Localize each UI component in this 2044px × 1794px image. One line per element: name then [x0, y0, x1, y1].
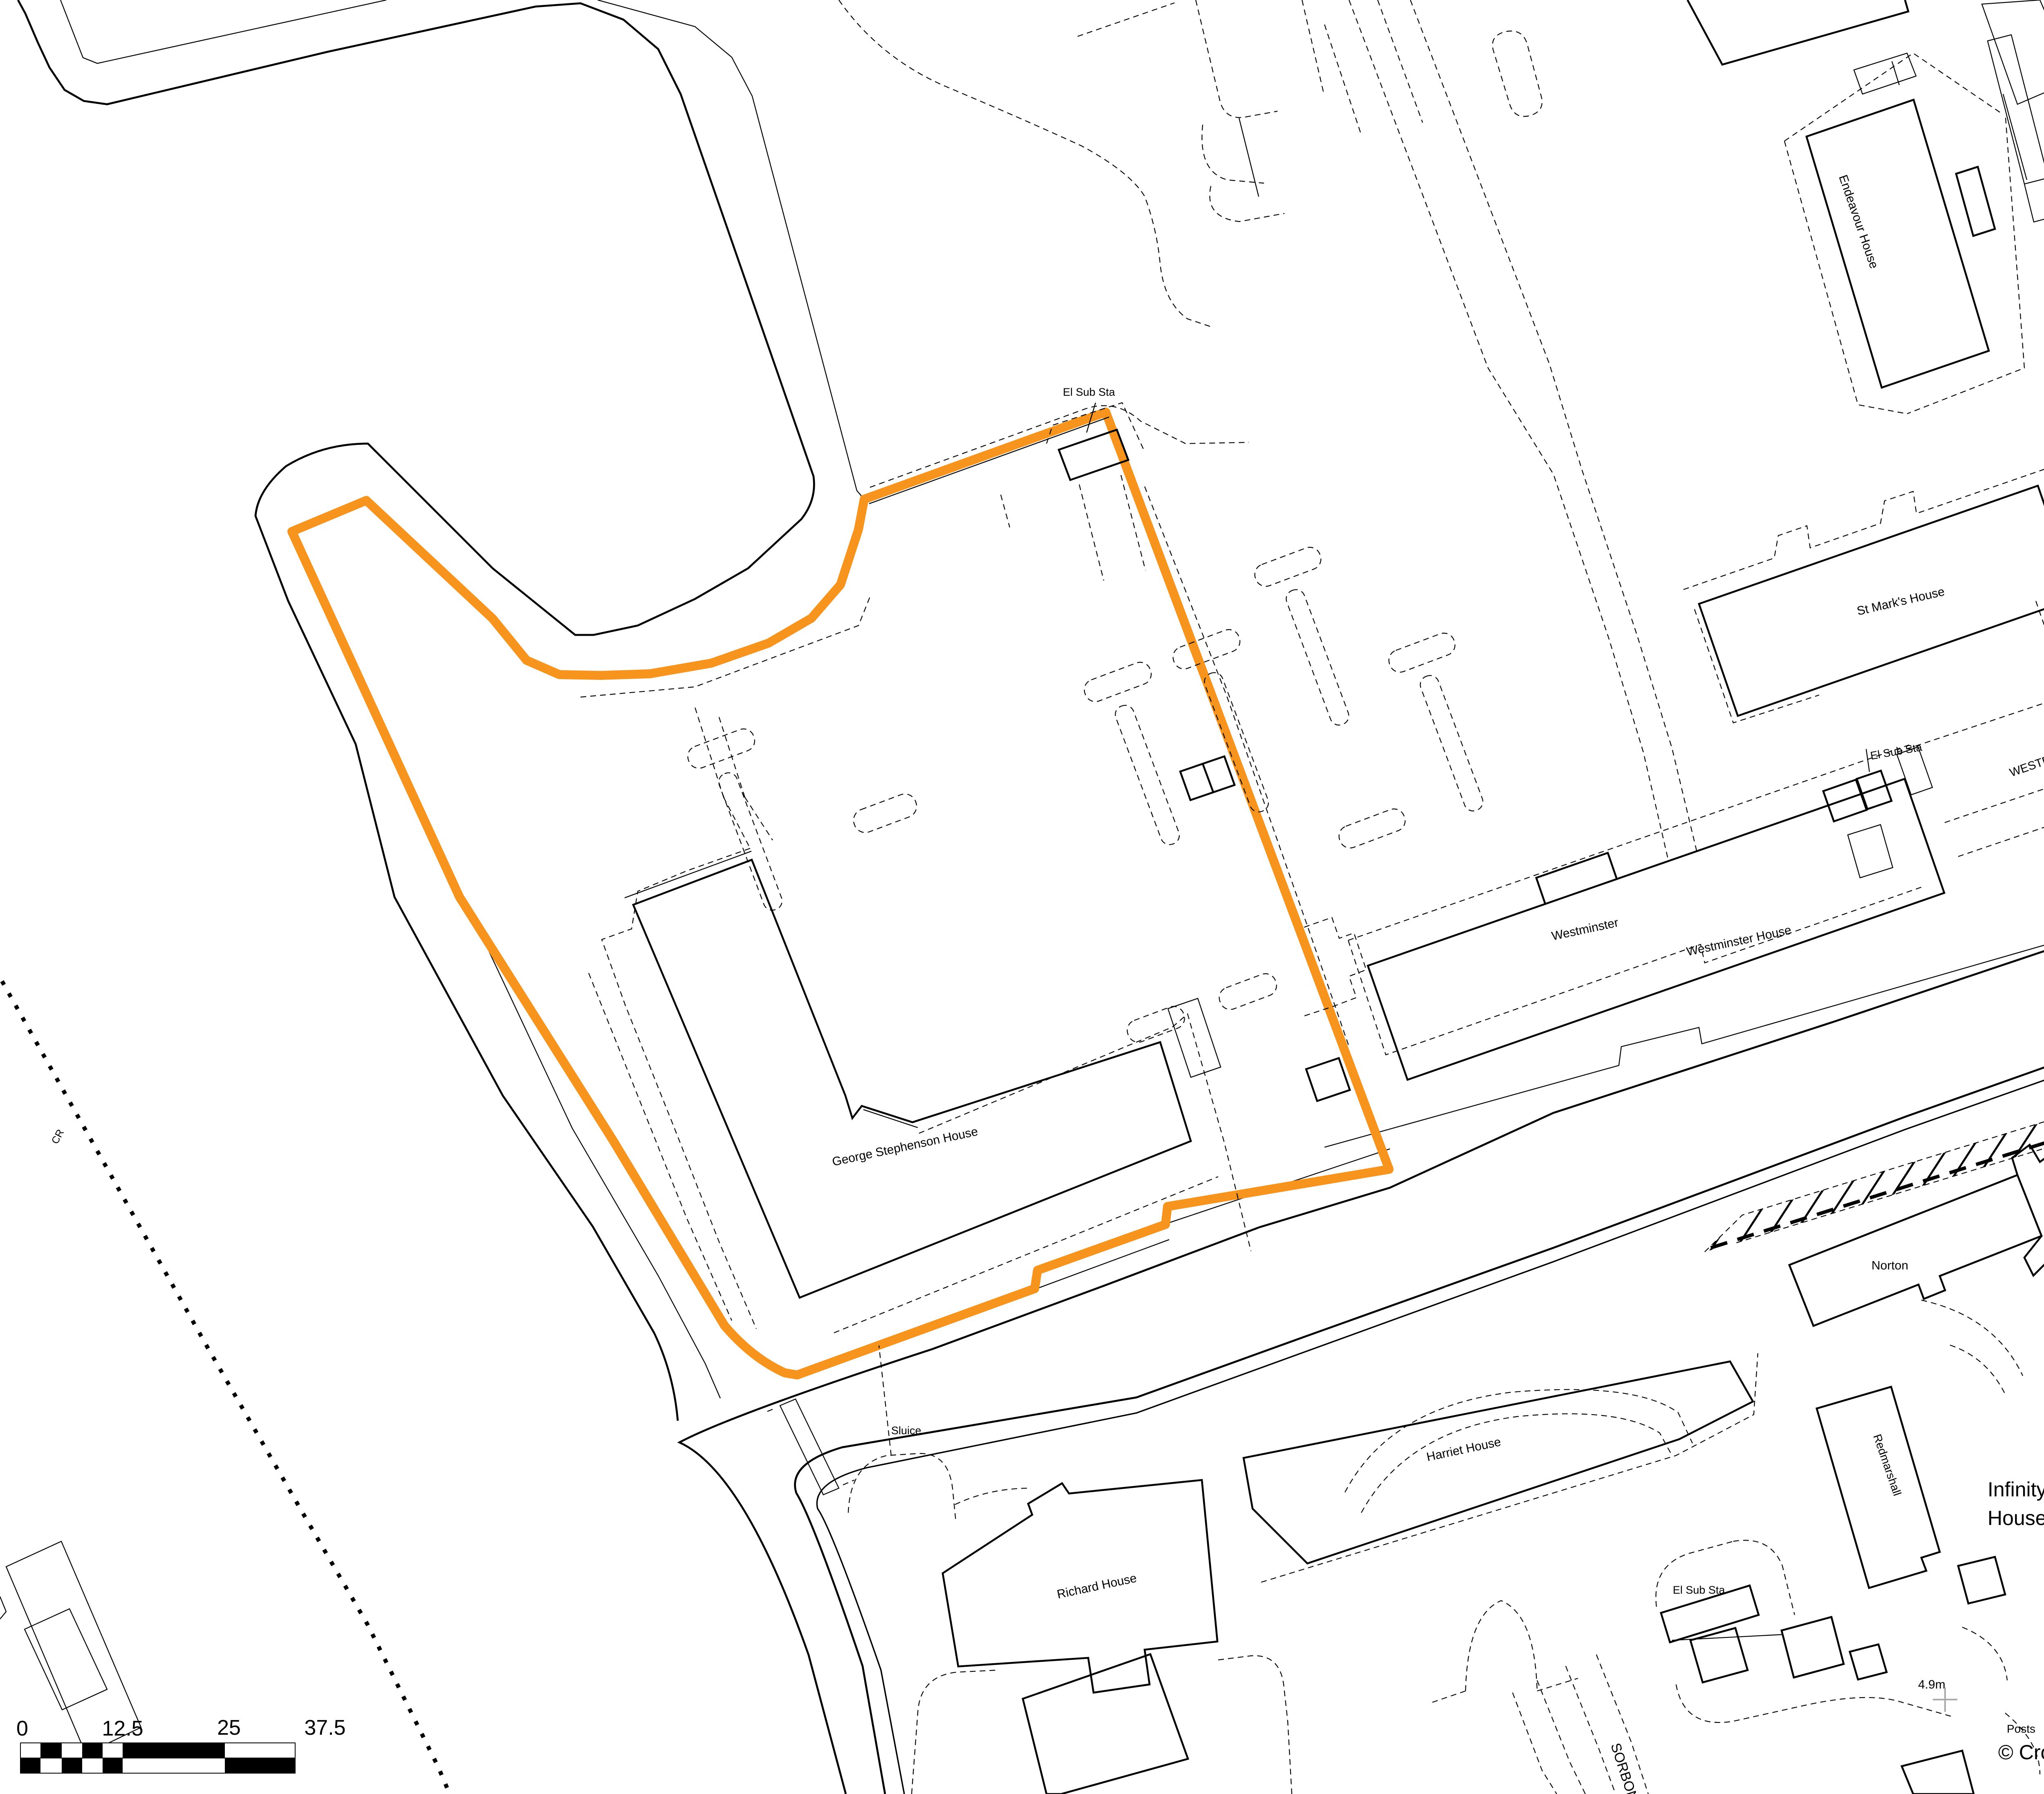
svg-text:House: House [1988, 1507, 2044, 1529]
svg-text:0: 0 [16, 1717, 28, 1740]
svg-text:El Sub Sta: El Sub Sta [1063, 386, 1116, 398]
svg-text:Sluice: Sluice [891, 1424, 921, 1437]
svg-text:© Crown Copyright and Database: © Crown Copyright and Database Rights 20… [1998, 1741, 2044, 1764]
svg-text:12.5: 12.5 [102, 1717, 143, 1740]
svg-text:Norton: Norton [1871, 1259, 1908, 1272]
svg-text:25: 25 [217, 1716, 241, 1740]
svg-text:Infinity: Infinity [1988, 1478, 2044, 1501]
svg-text:4.9m: 4.9m [1918, 1678, 1945, 1691]
svg-text:Posts: Posts [2007, 1722, 2035, 1735]
svg-text:El Sub Sta: El Sub Sta [1673, 1584, 1726, 1596]
svg-text:37.5: 37.5 [304, 1716, 345, 1740]
